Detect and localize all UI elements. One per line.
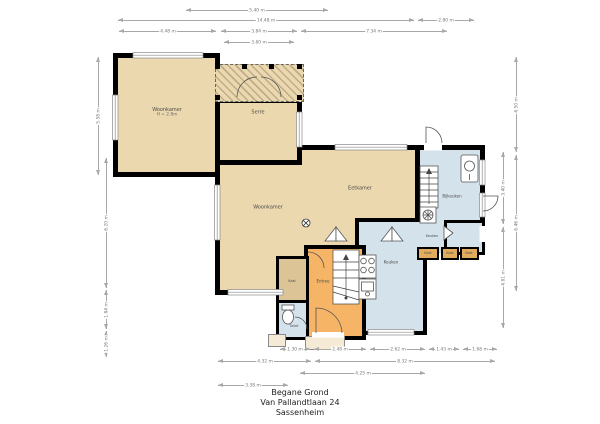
plan-title-address: Van Pallandtlaan 24 — [0, 398, 600, 408]
dimension-6.46m: 6.46 m — [512, 155, 520, 291]
dimension-3.60m: 3.60 m — [224, 38, 294, 46]
dimension-1.30m: 1.30 m — [280, 345, 310, 353]
dimension-label: 1.26 m — [104, 335, 109, 353]
dimension-label: 4.25 m — [354, 371, 372, 376]
room-entree — [304, 245, 366, 340]
dimension-5.58m: 5.58 m — [94, 57, 102, 175]
dimension-2.80m: 2.80 m — [418, 16, 474, 24]
dimension-label: 6.20 m — [104, 214, 109, 232]
dimension-label: 3.38 m — [244, 383, 262, 388]
dimension-label: 2.62 m — [389, 347, 407, 352]
room-label-serre: Serre — [251, 109, 264, 115]
dimension-label: 3.84 m — [250, 29, 268, 34]
dimension-label: 5.58 m — [96, 107, 101, 125]
dimension-1.68m: 1.68 m — [463, 345, 497, 353]
dimension-14.48m: 14.48 m — [118, 16, 414, 24]
dimension-1.26m: 1.26 m — [102, 331, 110, 357]
dimension-1.43m: 1.43 m — [429, 345, 459, 353]
dimension-4.81m: 4.81 m — [499, 227, 507, 328]
plan-title: Begane Grond Van Pallandtlaan 24 Sassenh… — [0, 388, 600, 418]
room-bijkeuken — [415, 145, 485, 228]
dimension-label: 14.48 m — [256, 18, 276, 23]
dimension-2.48m: 2.48 m — [314, 345, 366, 353]
dimension-label: 4.48 m — [159, 29, 177, 34]
dimension-3.40m: 3.40 m — [499, 152, 507, 224]
dimension-label: 1.84 m — [104, 301, 109, 319]
dimension-4.50m: 4.50 m — [512, 57, 520, 152]
room-label-entree: Entree — [316, 279, 329, 284]
pergola-hatch-area — [215, 64, 304, 102]
dimension-label: 1.30 m — [286, 347, 304, 352]
dimension-label: 8.32 m — [396, 359, 414, 364]
dimension-4.48m: 4.48 m — [119, 27, 216, 35]
room-label-toilet: Toilet — [290, 324, 299, 328]
dimension-4.25m: 4.25 m — [300, 369, 425, 377]
plan-title-city: Sassenheim — [0, 408, 600, 418]
plan-title-floor: Begane Grond — [0, 388, 600, 398]
dimension-2.62m: 2.62 m — [370, 345, 425, 353]
dimension-label: 5.40 m — [248, 8, 266, 13]
dimension-1.84m: 1.84 m — [102, 290, 110, 329]
floor-plan: Woonkamer H = 2.8m Serre Woonkamer Eetka… — [0, 0, 600, 424]
room-serre — [215, 98, 302, 165]
dimension-label: 3.40 m — [501, 179, 506, 197]
room-label-woonkamer-left: Woonkamer H = 2.8m — [152, 106, 182, 117]
door-arc-bijkeuken-right — [483, 196, 498, 211]
dimension-label: 1.68 m — [471, 347, 489, 352]
closet-label-kast-2: Kast — [446, 251, 453, 255]
closet-label-kast-3: Kast — [465, 251, 472, 255]
dimension-label: 7.34 m — [365, 29, 383, 34]
dimension-label: 1.43 m — [435, 347, 453, 352]
dimension-label: 6.46 m — [514, 214, 519, 232]
dimension-7.34m: 7.34 m — [301, 27, 447, 35]
room-label-kast: Kast — [288, 279, 295, 283]
dimension-6.20m: 6.20 m — [102, 158, 110, 288]
dimension-label: 4.32 m — [256, 359, 274, 364]
dimension-8.32m: 8.32 m — [315, 357, 495, 365]
dimension-label: 4.81 m — [501, 269, 506, 287]
room-label-eetkamer: Eetkamer — [348, 185, 372, 191]
room-label-keuken: Keuken — [384, 260, 399, 265]
room-label-keuken-upper: Keuken — [426, 234, 438, 238]
closet-label-kast-1: Kast — [424, 251, 431, 255]
room-label-bijkeuken: Bijkeuken — [442, 194, 461, 199]
room-label-woonkamer: Woonkamer — [253, 204, 283, 210]
dimension-label: 2.48 m — [331, 347, 349, 352]
dimension-label: 2.80 m — [437, 18, 455, 23]
dimension-4.32m: 4.32 m — [218, 357, 311, 365]
dimension-5.40m: 5.40 m — [186, 6, 328, 14]
dimension-label: 4.50 m — [514, 96, 519, 114]
dimension-label: 3.60 m — [250, 40, 268, 45]
dimension-3.84m: 3.84 m — [221, 27, 297, 35]
door-arc-bijkeuken-top — [426, 127, 442, 143]
